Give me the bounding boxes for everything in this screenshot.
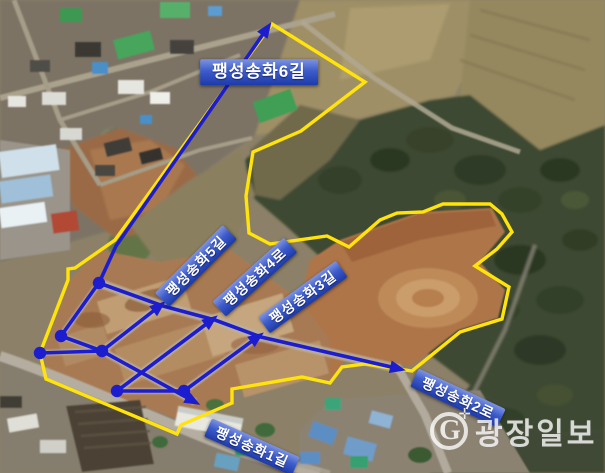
road-node-dot: [34, 347, 46, 359]
road-node-dot: [178, 385, 190, 397]
road-node-dot: [93, 277, 105, 289]
songhwa3-road-arrow: [184, 336, 259, 391]
road-node-dot: [111, 385, 123, 397]
road-node-dot: [96, 345, 108, 357]
songhwa5-road-arrow: [102, 305, 161, 351]
connector-road-bd: [61, 336, 102, 351]
news-photo-aerial-map: 팽성송화6길 팽성송화5길 팽성송화4로 팽성송화3길 팽성송화2로 팽성송화1…: [0, 0, 605, 473]
site-boundary-polygon: [40, 24, 512, 434]
songhwa6-road-arrow-arrowhead: [257, 22, 271, 39]
main-exit-road-arrow: [99, 283, 400, 369]
road-node-dot: [55, 330, 67, 342]
connector-road-cd: [40, 351, 102, 353]
west-edge-road: [61, 284, 98, 336]
road-label-paengseong-songhwa-6gil: 팽성송화6길: [200, 59, 318, 85]
